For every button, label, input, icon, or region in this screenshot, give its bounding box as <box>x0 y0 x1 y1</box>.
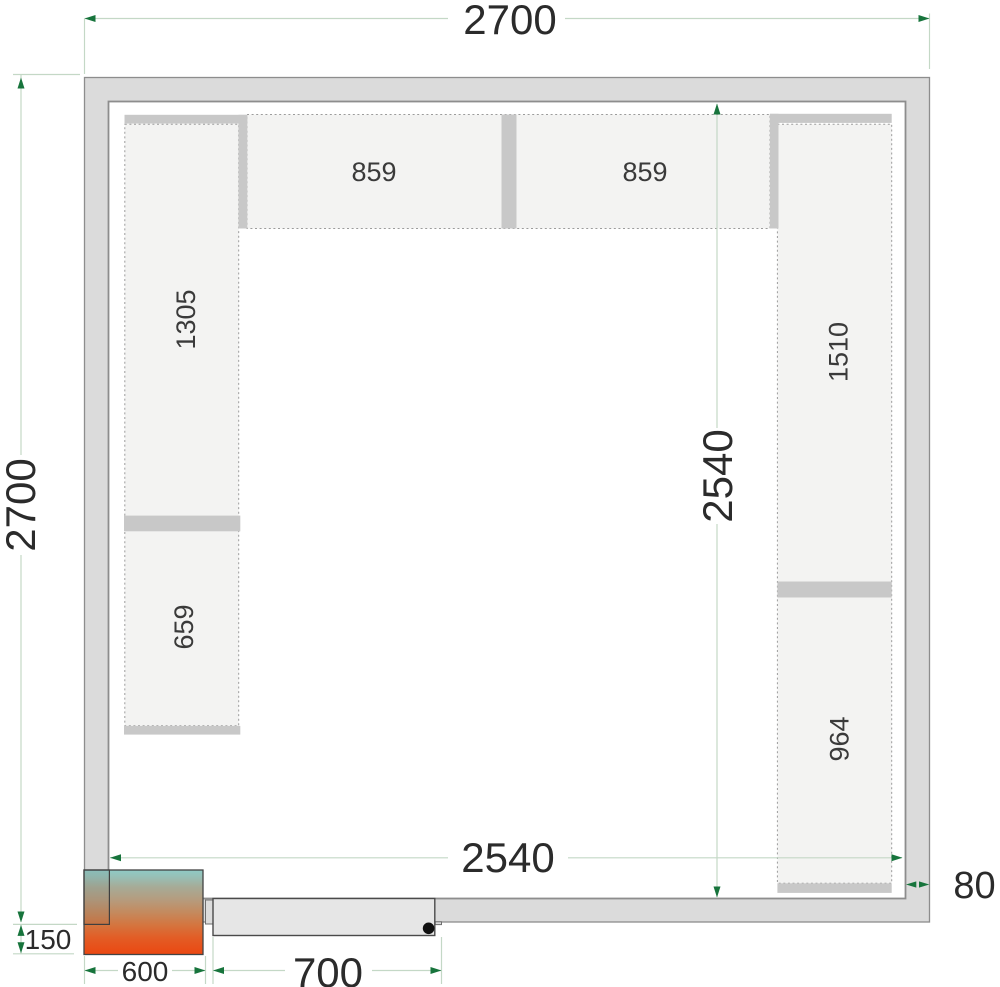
svg-text:2700: 2700 <box>0 458 44 551</box>
svg-text:80: 80 <box>953 865 995 907</box>
svg-text:1510: 1510 <box>824 322 854 382</box>
svg-text:659: 659 <box>169 604 199 649</box>
svg-text:2700: 2700 <box>463 0 556 43</box>
svg-text:964: 964 <box>825 716 855 761</box>
svg-text:2540: 2540 <box>694 429 741 522</box>
svg-text:2540: 2540 <box>461 834 554 881</box>
svg-text:600: 600 <box>122 956 169 987</box>
svg-text:700: 700 <box>293 949 363 987</box>
svg-text:859: 859 <box>622 157 667 187</box>
svg-text:150: 150 <box>25 924 72 955</box>
svg-text:859: 859 <box>351 157 396 187</box>
svg-text:1305: 1305 <box>171 289 201 349</box>
